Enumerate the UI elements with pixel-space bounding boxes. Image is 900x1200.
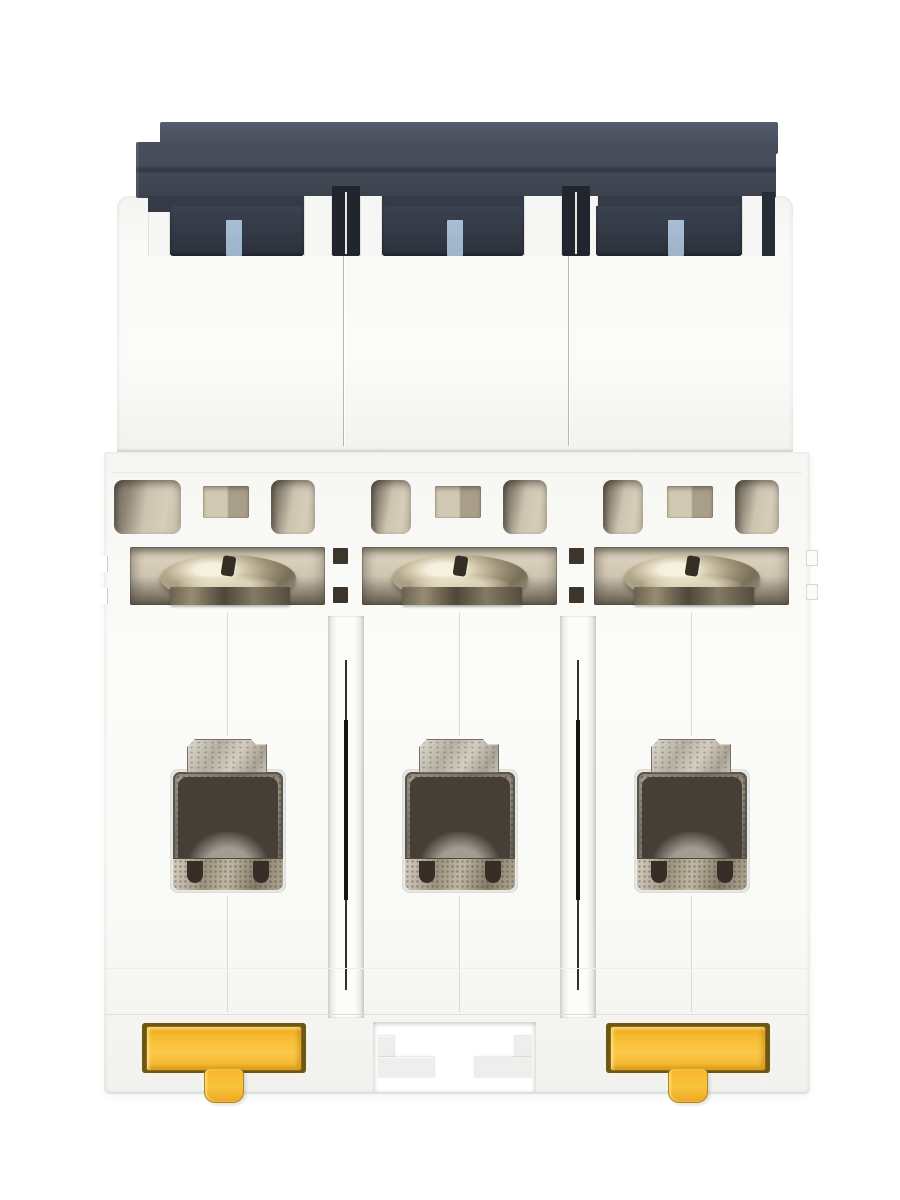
- breaker-bottom-view-photo: [0, 0, 900, 1200]
- din-clip-tab-pole-3: [668, 1069, 708, 1103]
- divider-vent-square: [569, 548, 584, 564]
- divider-vent-square: [333, 548, 348, 564]
- vent-center-port: [667, 486, 713, 518]
- clamp-notch: [717, 861, 733, 883]
- pole-seam: [691, 612, 692, 736]
- din-clip-pole-3: [610, 1026, 766, 1071]
- housing-seam-line: [106, 1014, 808, 1015]
- terminal-clamp-window: [642, 777, 742, 869]
- edge-notch: [98, 556, 108, 572]
- edge-notch: [98, 588, 108, 604]
- din-clip-tab-pole-1: [204, 1069, 244, 1103]
- vent-slot: [735, 480, 779, 534]
- clamp-metal-base: [637, 858, 747, 890]
- din-clip-pole-1: [146, 1026, 302, 1071]
- divider-vent-square: [569, 587, 584, 603]
- terminal-metal-tab: [651, 739, 731, 773]
- pole-seam: [691, 896, 692, 1012]
- edge-notch: [806, 550, 818, 566]
- vent-slot: [603, 480, 643, 534]
- divider-vent-square: [333, 587, 348, 603]
- module-groove: [328, 616, 364, 1018]
- edge-notch: [806, 584, 818, 600]
- clamp-edge: [634, 587, 754, 605]
- cutout-ledge: [475, 1057, 532, 1078]
- pole-3-assembly: [0, 0, 900, 1200]
- cutout-ledge: [377, 1057, 434, 1078]
- clamp-notch: [651, 861, 667, 883]
- module-groove: [560, 616, 596, 1018]
- housing-seam-line: [106, 968, 808, 969]
